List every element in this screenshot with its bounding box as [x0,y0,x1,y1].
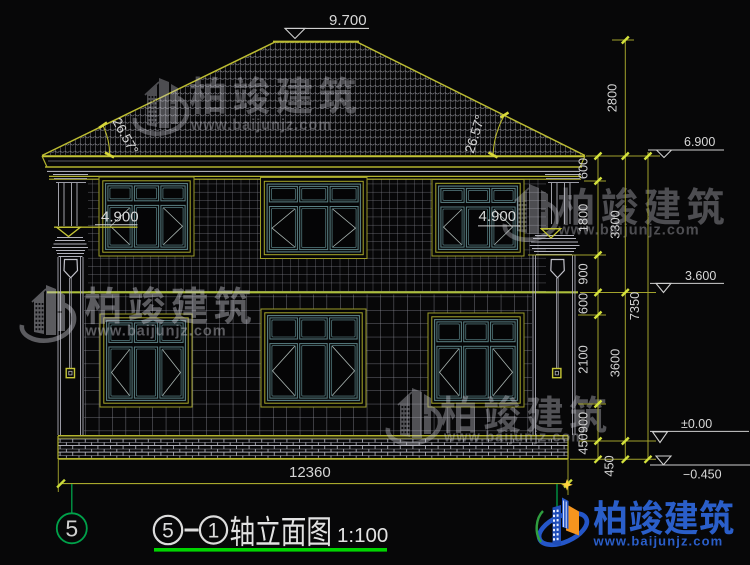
svg-text:12360: 12360 [289,464,331,481]
svg-text:2800: 2800 [605,84,620,112]
svg-text:3300: 3300 [608,210,623,238]
svg-text:www.baijunjz.com: www.baijunjz.com [443,430,585,446]
svg-text:5: 5 [162,520,174,543]
svg-text:7350: 7350 [627,292,642,320]
svg-text:4.900: 4.900 [479,208,517,225]
svg-text:www.baijunjz.com: www.baijunjz.com [85,324,227,340]
svg-text:6.900: 6.900 [684,135,715,149]
svg-text:4.900: 4.900 [101,209,139,226]
svg-text:600: 600 [576,158,591,179]
svg-text:900: 900 [576,412,591,433]
svg-text:1:100: 1:100 [337,524,388,547]
svg-text:www.baijunjz.com: www.baijunjz.com [190,118,332,134]
svg-text:2100: 2100 [576,345,591,373]
svg-text:450: 450 [602,455,617,476]
svg-text:www.baijunjz.com: www.baijunjz.com [593,534,724,549]
svg-text:9.700: 9.700 [329,12,367,29]
svg-text:3.600: 3.600 [685,269,716,283]
svg-text:600: 600 [576,293,591,314]
svg-text:900: 900 [576,263,591,284]
svg-text:−0.450: −0.450 [683,468,722,482]
svg-text:3600: 3600 [608,349,623,377]
svg-text:1800: 1800 [576,204,591,232]
svg-text:±0.00: ±0.00 [681,417,712,431]
svg-text:5: 5 [65,516,78,542]
svg-text:450: 450 [576,433,591,454]
svg-text:1: 1 [208,520,220,543]
